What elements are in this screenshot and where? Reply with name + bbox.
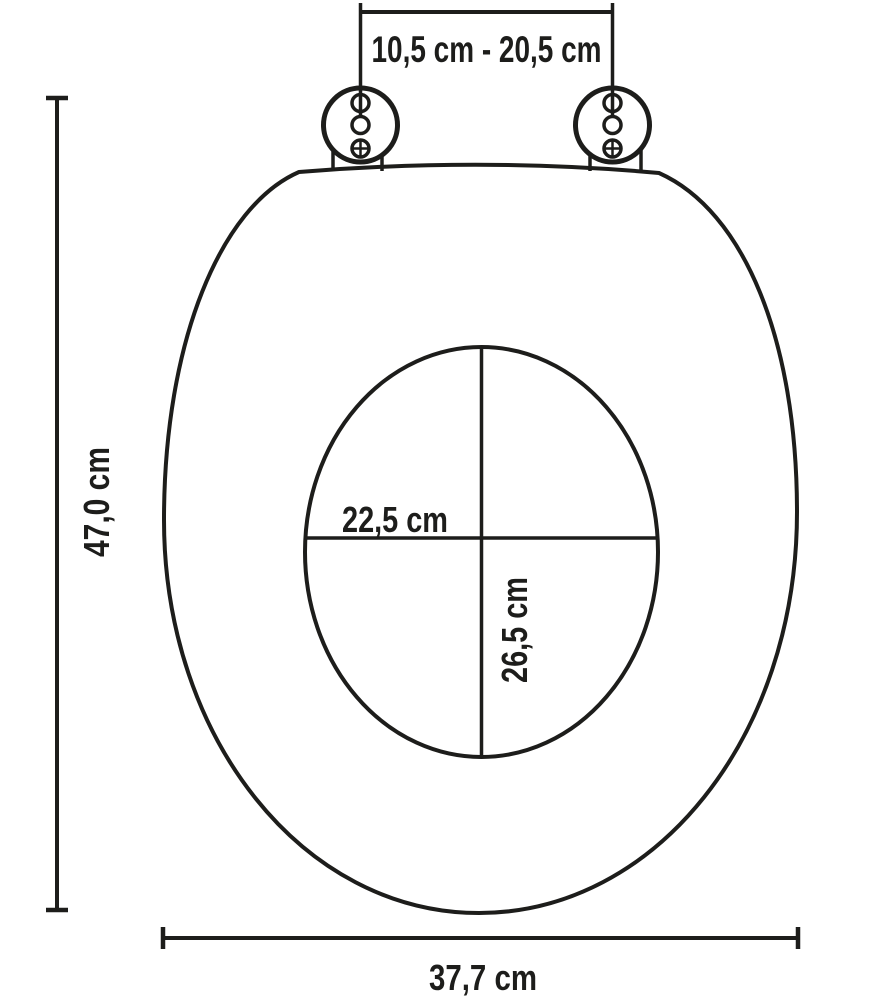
seat	[164, 165, 797, 913]
inner-width-label: 22,5 cm	[342, 499, 448, 540]
overall-height-label: 47,0 cm	[76, 447, 117, 557]
toilet-seat-dimension-diagram: 10,5 cm - 20,5 cm 47,0 cm 37,7 cm 22,5 c…	[0, 0, 885, 1000]
right-hinge-middle-hole-icon	[604, 117, 621, 134]
diagram-page: 10,5 cm - 20,5 cm 47,0 cm 37,7 cm 22,5 c…	[0, 0, 885, 1000]
overall-width-label: 37,7 cm	[429, 957, 537, 998]
hinge-distance-label: 10,5 cm - 20,5 cm	[372, 29, 602, 70]
inner-depth-label: 26,5 cm	[494, 577, 535, 683]
overall-width-dimension: 37,7 cm	[163, 927, 798, 998]
overall-height-dimension: 47,0 cm	[46, 98, 117, 910]
left-hinge-middle-hole-icon	[352, 117, 369, 134]
hinge-distance-dimension: 10,5 cm - 20,5 cm	[361, 12, 613, 70]
